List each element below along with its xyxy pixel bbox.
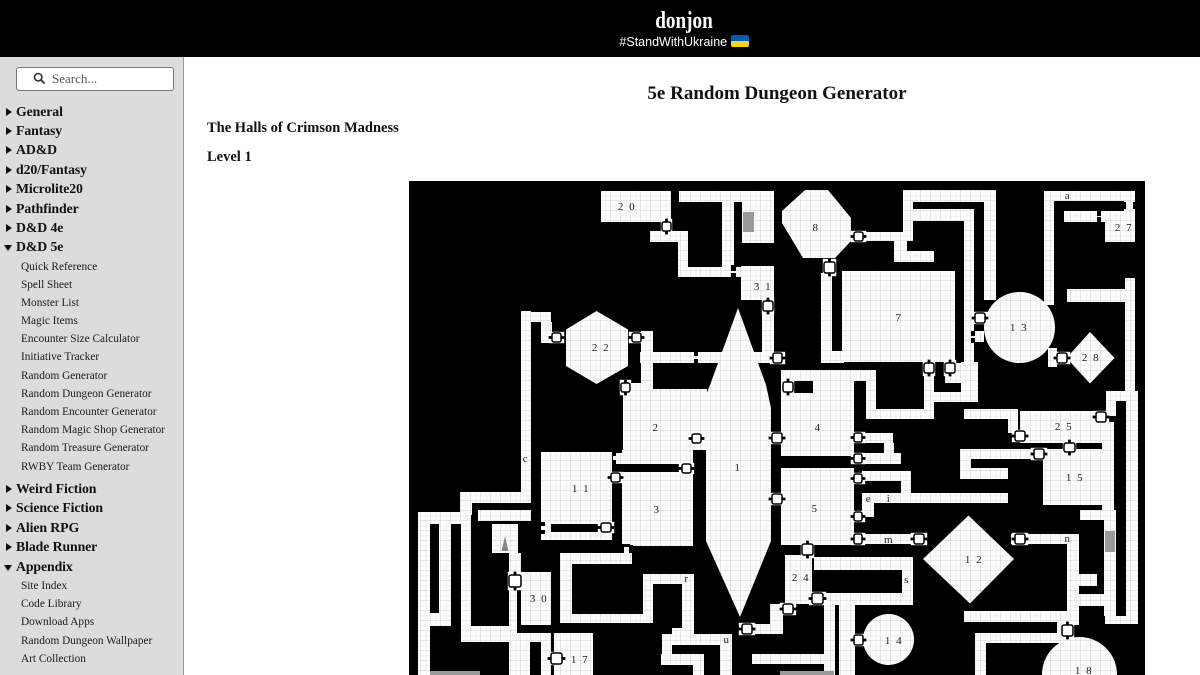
svg-text:e: e [866,493,872,505]
svg-text:2 4: 2 4 [792,572,810,584]
svg-text:a: a [1065,190,1071,202]
svg-text:2 8: 2 8 [1082,352,1100,364]
svg-text:i: i [887,493,892,505]
svg-text:2 0: 2 0 [618,201,636,213]
svg-text:1 2: 1 2 [965,554,983,566]
svg-text:7: 7 [896,312,903,324]
svg-text:n: n [1065,533,1072,545]
svg-text:1 3: 1 3 [1010,322,1028,334]
svg-text:2: 2 [653,422,660,434]
svg-text:2 5: 2 5 [1055,421,1073,433]
svg-text:8: 8 [813,222,820,234]
svg-text:1 1: 1 1 [572,483,590,495]
svg-text:5: 5 [812,503,819,515]
svg-text:2 7: 2 7 [1115,222,1133,234]
svg-text:s: s [904,574,910,586]
svg-text:2 2: 2 2 [592,342,610,354]
svg-text:4: 4 [815,422,822,434]
svg-text:3 0: 3 0 [530,593,548,605]
svg-text:1 7: 1 7 [571,654,589,666]
svg-text:3 1: 3 1 [754,281,772,293]
svg-text:r: r [684,573,689,585]
svg-text:c: c [523,453,529,465]
svg-text:3: 3 [654,504,661,516]
svg-text:1: 1 [735,462,742,474]
svg-text:u: u [724,634,731,646]
svg-text:1 8: 1 8 [1075,665,1093,675]
svg-text:m: m [884,534,894,546]
svg-text:1 5: 1 5 [1066,472,1084,484]
svg-text:1 4: 1 4 [885,635,903,647]
